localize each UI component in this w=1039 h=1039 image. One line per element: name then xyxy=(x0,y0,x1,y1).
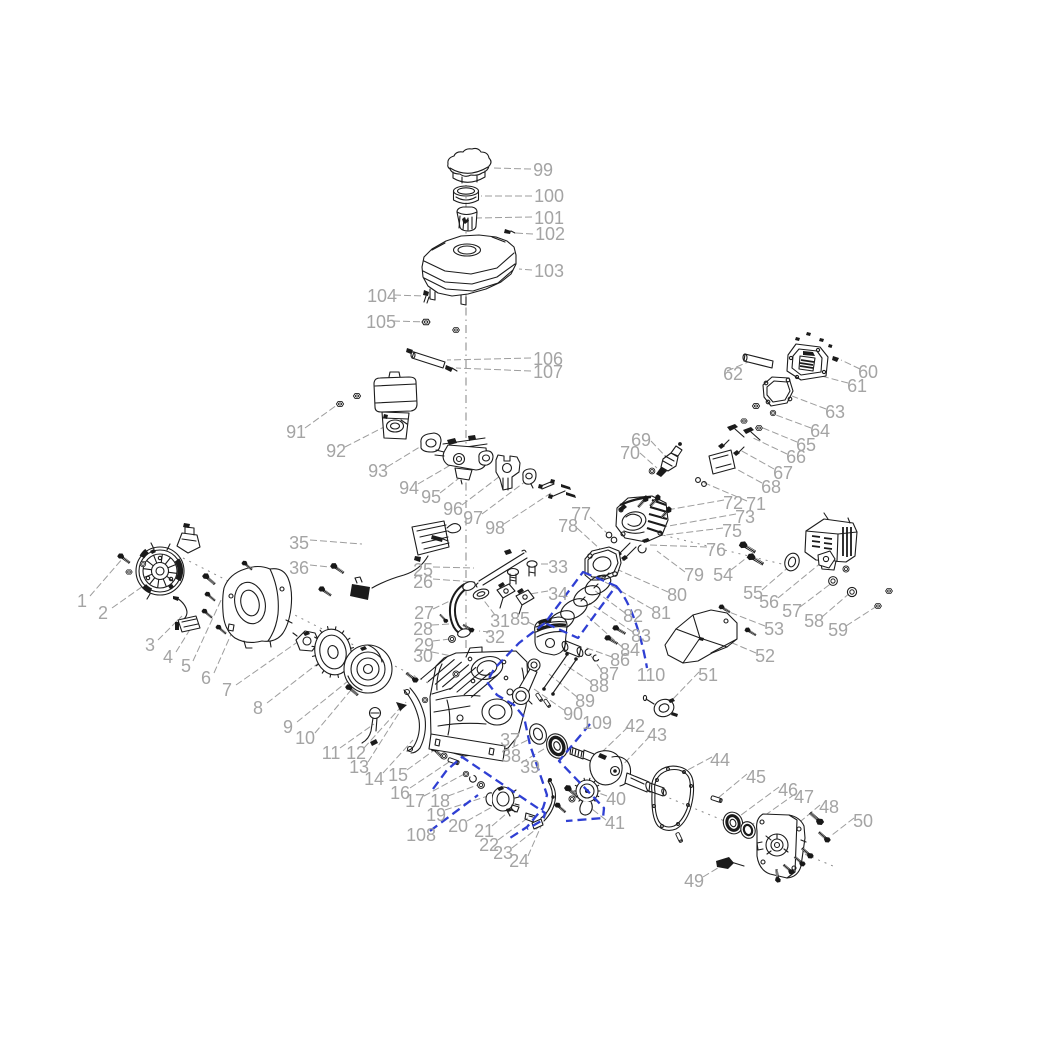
svg-text:33: 33 xyxy=(548,557,568,577)
svg-text:90: 90 xyxy=(563,704,583,724)
svg-text:48: 48 xyxy=(819,797,839,817)
svg-text:40: 40 xyxy=(606,789,626,809)
svg-text:1: 1 xyxy=(77,591,87,611)
svg-text:30: 30 xyxy=(413,646,433,666)
svg-text:5: 5 xyxy=(181,656,191,676)
svg-text:80: 80 xyxy=(667,585,687,605)
svg-text:79: 79 xyxy=(684,565,704,585)
svg-text:35: 35 xyxy=(289,533,309,553)
svg-text:70: 70 xyxy=(620,443,640,463)
svg-text:103: 103 xyxy=(534,261,564,281)
svg-text:59: 59 xyxy=(828,620,848,640)
svg-text:39: 39 xyxy=(520,757,540,777)
svg-text:57: 57 xyxy=(782,601,802,621)
svg-text:98: 98 xyxy=(485,518,505,538)
svg-text:63: 63 xyxy=(825,402,845,422)
svg-text:56: 56 xyxy=(759,592,779,612)
svg-text:51: 51 xyxy=(698,665,718,685)
svg-text:3: 3 xyxy=(145,635,155,655)
svg-text:45: 45 xyxy=(746,767,766,787)
svg-text:32: 32 xyxy=(485,627,505,647)
svg-text:9: 9 xyxy=(283,717,293,737)
svg-text:99: 99 xyxy=(533,160,553,180)
svg-text:11: 11 xyxy=(322,743,341,763)
svg-text:58: 58 xyxy=(804,611,824,631)
svg-text:93: 93 xyxy=(368,461,388,481)
svg-text:26: 26 xyxy=(413,572,433,592)
svg-text:6: 6 xyxy=(201,668,211,688)
svg-text:96: 96 xyxy=(443,499,463,519)
svg-text:38: 38 xyxy=(501,746,521,766)
svg-text:110: 110 xyxy=(637,665,665,685)
svg-text:94: 94 xyxy=(399,478,419,498)
svg-text:108: 108 xyxy=(406,825,436,845)
svg-text:41: 41 xyxy=(605,813,625,833)
svg-text:62: 62 xyxy=(723,364,743,384)
svg-text:82: 82 xyxy=(623,606,643,626)
svg-text:52: 52 xyxy=(755,646,775,666)
svg-text:95: 95 xyxy=(421,487,441,507)
svg-text:24: 24 xyxy=(509,851,529,871)
svg-text:34: 34 xyxy=(548,584,568,604)
svg-text:43: 43 xyxy=(647,725,667,745)
svg-text:61: 61 xyxy=(847,376,867,396)
svg-text:47: 47 xyxy=(794,787,814,807)
svg-text:54: 54 xyxy=(713,565,733,585)
svg-text:36: 36 xyxy=(289,558,309,578)
svg-text:14: 14 xyxy=(364,769,384,789)
svg-text:7: 7 xyxy=(222,680,232,700)
svg-text:78: 78 xyxy=(558,516,578,536)
svg-text:2: 2 xyxy=(98,603,108,623)
svg-text:107: 107 xyxy=(533,362,563,382)
svg-text:91: 91 xyxy=(286,422,306,442)
svg-text:76: 76 xyxy=(706,540,726,560)
svg-text:20: 20 xyxy=(448,816,468,836)
svg-text:8: 8 xyxy=(253,698,263,718)
svg-text:81: 81 xyxy=(651,603,671,623)
svg-text:19: 19 xyxy=(426,805,446,825)
svg-text:53: 53 xyxy=(764,619,784,639)
svg-text:17: 17 xyxy=(405,791,425,811)
svg-text:75: 75 xyxy=(722,521,742,541)
svg-text:100: 100 xyxy=(534,186,564,206)
svg-text:97: 97 xyxy=(463,508,483,528)
svg-text:15: 15 xyxy=(388,765,408,785)
svg-text:10: 10 xyxy=(295,728,315,748)
svg-text:85: 85 xyxy=(510,609,530,629)
svg-text:109: 109 xyxy=(582,713,612,733)
svg-text:92: 92 xyxy=(326,441,346,461)
svg-text:4: 4 xyxy=(163,647,173,667)
svg-text:49: 49 xyxy=(684,871,704,891)
svg-text:50: 50 xyxy=(853,811,873,831)
svg-text:44: 44 xyxy=(710,750,730,770)
svg-text:105: 105 xyxy=(366,312,396,332)
svg-text:104: 104 xyxy=(367,286,397,306)
svg-text:102: 102 xyxy=(535,224,565,244)
svg-text:42: 42 xyxy=(625,716,645,736)
